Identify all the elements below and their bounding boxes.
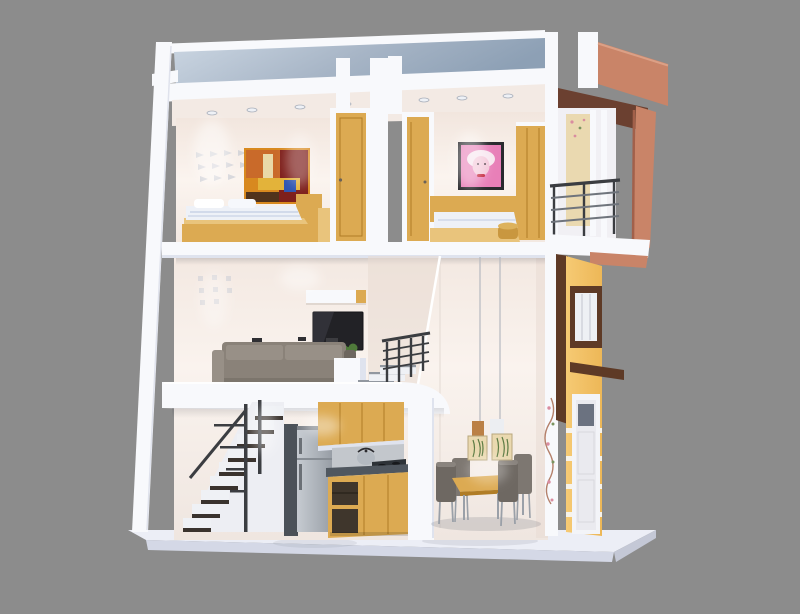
upper-floor-slab-edge xyxy=(162,255,548,258)
appliance-side-panel xyxy=(284,424,298,536)
open-shelf xyxy=(332,509,358,533)
pillow xyxy=(228,199,256,208)
cushion-item xyxy=(326,338,338,342)
render-canvas xyxy=(0,0,800,614)
remote xyxy=(252,338,262,342)
shelf-wood-cap xyxy=(356,290,366,303)
mattress xyxy=(186,206,302,220)
house-cutaway-scene xyxy=(0,0,800,614)
fridge-door-divider xyxy=(297,458,333,460)
entry-door xyxy=(572,394,600,534)
remote xyxy=(298,337,306,341)
door-handle xyxy=(339,178,342,181)
lower-cabinets xyxy=(328,472,410,538)
dining-shadow xyxy=(431,517,541,531)
balcony-mullion xyxy=(590,110,596,236)
gold-pouf xyxy=(498,223,518,240)
upper-floor-slab xyxy=(162,242,548,257)
partition-top-left xyxy=(336,58,350,110)
bedroom-left-door xyxy=(330,108,372,244)
door-glass-pane xyxy=(578,404,594,426)
pendant-cube-wood xyxy=(472,421,484,436)
partition-top-right xyxy=(388,56,402,114)
back-cushion xyxy=(226,345,283,360)
partition-wall-ground xyxy=(408,394,434,540)
fridge-handle xyxy=(299,464,302,490)
pendant-cube-white xyxy=(490,419,504,434)
slab-shadow xyxy=(176,258,546,265)
bedroom-right-door xyxy=(402,112,434,244)
balcony-mullion xyxy=(601,110,607,238)
door-handle xyxy=(424,181,427,184)
fridge-handle xyxy=(299,438,302,454)
wardrobe xyxy=(516,122,550,240)
bed-right xyxy=(430,196,520,242)
bed-base xyxy=(182,224,312,242)
terracotta-column-shade xyxy=(633,110,634,244)
pillow xyxy=(194,199,224,208)
back-cushion xyxy=(285,345,342,360)
facade-window xyxy=(570,286,602,348)
pendant-shade-right xyxy=(492,434,512,460)
roof-white-block xyxy=(578,32,598,88)
partition-wall-cut xyxy=(370,58,388,242)
